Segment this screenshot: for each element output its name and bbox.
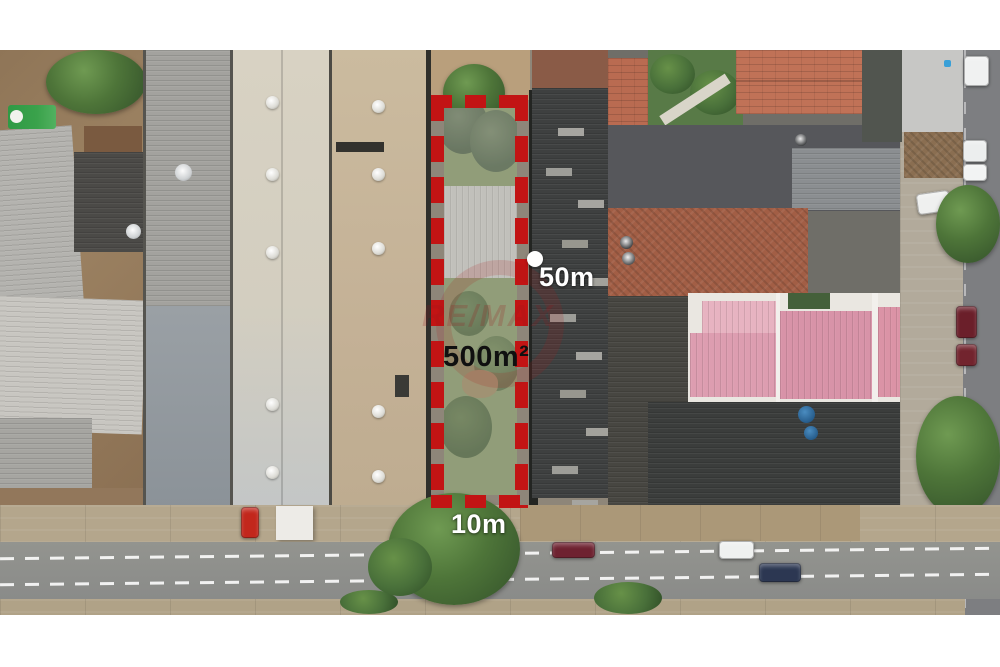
- roof-gap-line-1: [143, 50, 146, 510]
- roof-dark-below-pink: [648, 402, 930, 510]
- retaining-wall-tan: [520, 505, 860, 541]
- maroon-car-right-2: [956, 344, 977, 366]
- screenshot: RE/MAX 50m 500m² 10m: [0, 0, 1000, 667]
- satellite-dish-left: [126, 224, 141, 239]
- driveway-blue-marker: [944, 60, 951, 67]
- garden-top-right: [648, 50, 743, 128]
- water-tank-2: [804, 426, 818, 440]
- satellite-dish-mid-1: [795, 134, 807, 146]
- pink-roof-trim-2: [872, 293, 878, 405]
- roof-dark-patches: [558, 128, 584, 136]
- roof-vent-b2: [266, 168, 279, 181]
- white-canopy: [276, 506, 313, 540]
- roof-vent-slots: [336, 142, 384, 152]
- pink-roof-left: [690, 333, 776, 397]
- sidewalk-lower: [0, 599, 965, 615]
- roof-strip-cream: [233, 50, 330, 510]
- pool-deck-circle: [10, 110, 23, 123]
- maroon-car-right-1: [956, 306, 977, 338]
- tree-right-upper: [936, 185, 1000, 263]
- pink-roof-complex: [688, 293, 935, 405]
- boundary-edge-bottom: [431, 495, 528, 508]
- navy-car-road: [759, 563, 801, 582]
- pink-roof-trim-1: [776, 293, 780, 405]
- roof-white-lower-left: [0, 295, 146, 434]
- white-margin-top: [0, 0, 1000, 50]
- maroon-car-road: [552, 542, 595, 558]
- tree-right-lower: [916, 396, 1000, 516]
- dark-wall-right: [862, 50, 902, 142]
- frontage-label: 10m: [451, 511, 507, 538]
- roof-ridge-seam: [281, 50, 283, 510]
- satellite-dish-strip-a: [175, 164, 192, 181]
- pink-roof-courtyard: [788, 293, 830, 309]
- swimming-pool: [8, 105, 56, 129]
- depth-label: 50m: [539, 264, 595, 291]
- roof-vent-c1: [372, 100, 385, 113]
- roof-vent-b4: [266, 398, 279, 411]
- roof-strip-gray-bottom: [145, 306, 232, 510]
- driveway-concrete: [902, 50, 964, 132]
- aerial-photo: RE/MAX 50m 500m² 10m: [0, 50, 1000, 615]
- boundary-edge-top: [431, 95, 528, 108]
- roof-hatch-dark: [395, 375, 409, 397]
- white-car-right-3: [963, 164, 987, 181]
- dirt-patch-right: [904, 132, 964, 178]
- watermark-text: RE/MAX: [422, 298, 555, 334]
- roof-vent-c5: [372, 470, 385, 483]
- white-car-right-1: [964, 56, 989, 86]
- roof-terracotta-textured: [608, 208, 808, 296]
- tree-top-left: [46, 50, 146, 114]
- street-tree-large-lobe: [368, 538, 432, 596]
- satellite-dish-mid-2: [620, 236, 633, 249]
- red-parked-car: [241, 507, 259, 538]
- white-car-road: [719, 541, 754, 559]
- roof-white-slanted-left: [0, 125, 84, 314]
- bush-bottom-2: [594, 582, 662, 614]
- satellite-dish-mid-3: [622, 252, 635, 265]
- roof-terracotta-topbit: [532, 50, 608, 90]
- pink-roof-middle: [780, 311, 872, 399]
- area-label: 500m²: [443, 343, 529, 372]
- garden-tree-1: [650, 54, 695, 94]
- roof-vent-b1: [266, 96, 279, 109]
- white-margin-bottom: [0, 615, 1000, 667]
- roof-vent-c4: [372, 405, 385, 418]
- roof-vent-b3: [266, 246, 279, 259]
- pink-roof-left-light: [702, 301, 776, 333]
- water-tank-1: [798, 406, 815, 423]
- roof-vent-b5: [266, 466, 279, 479]
- roof-vent-c3: [372, 242, 385, 255]
- roof-vent-c2: [372, 168, 385, 181]
- white-car-right-2: [963, 140, 987, 162]
